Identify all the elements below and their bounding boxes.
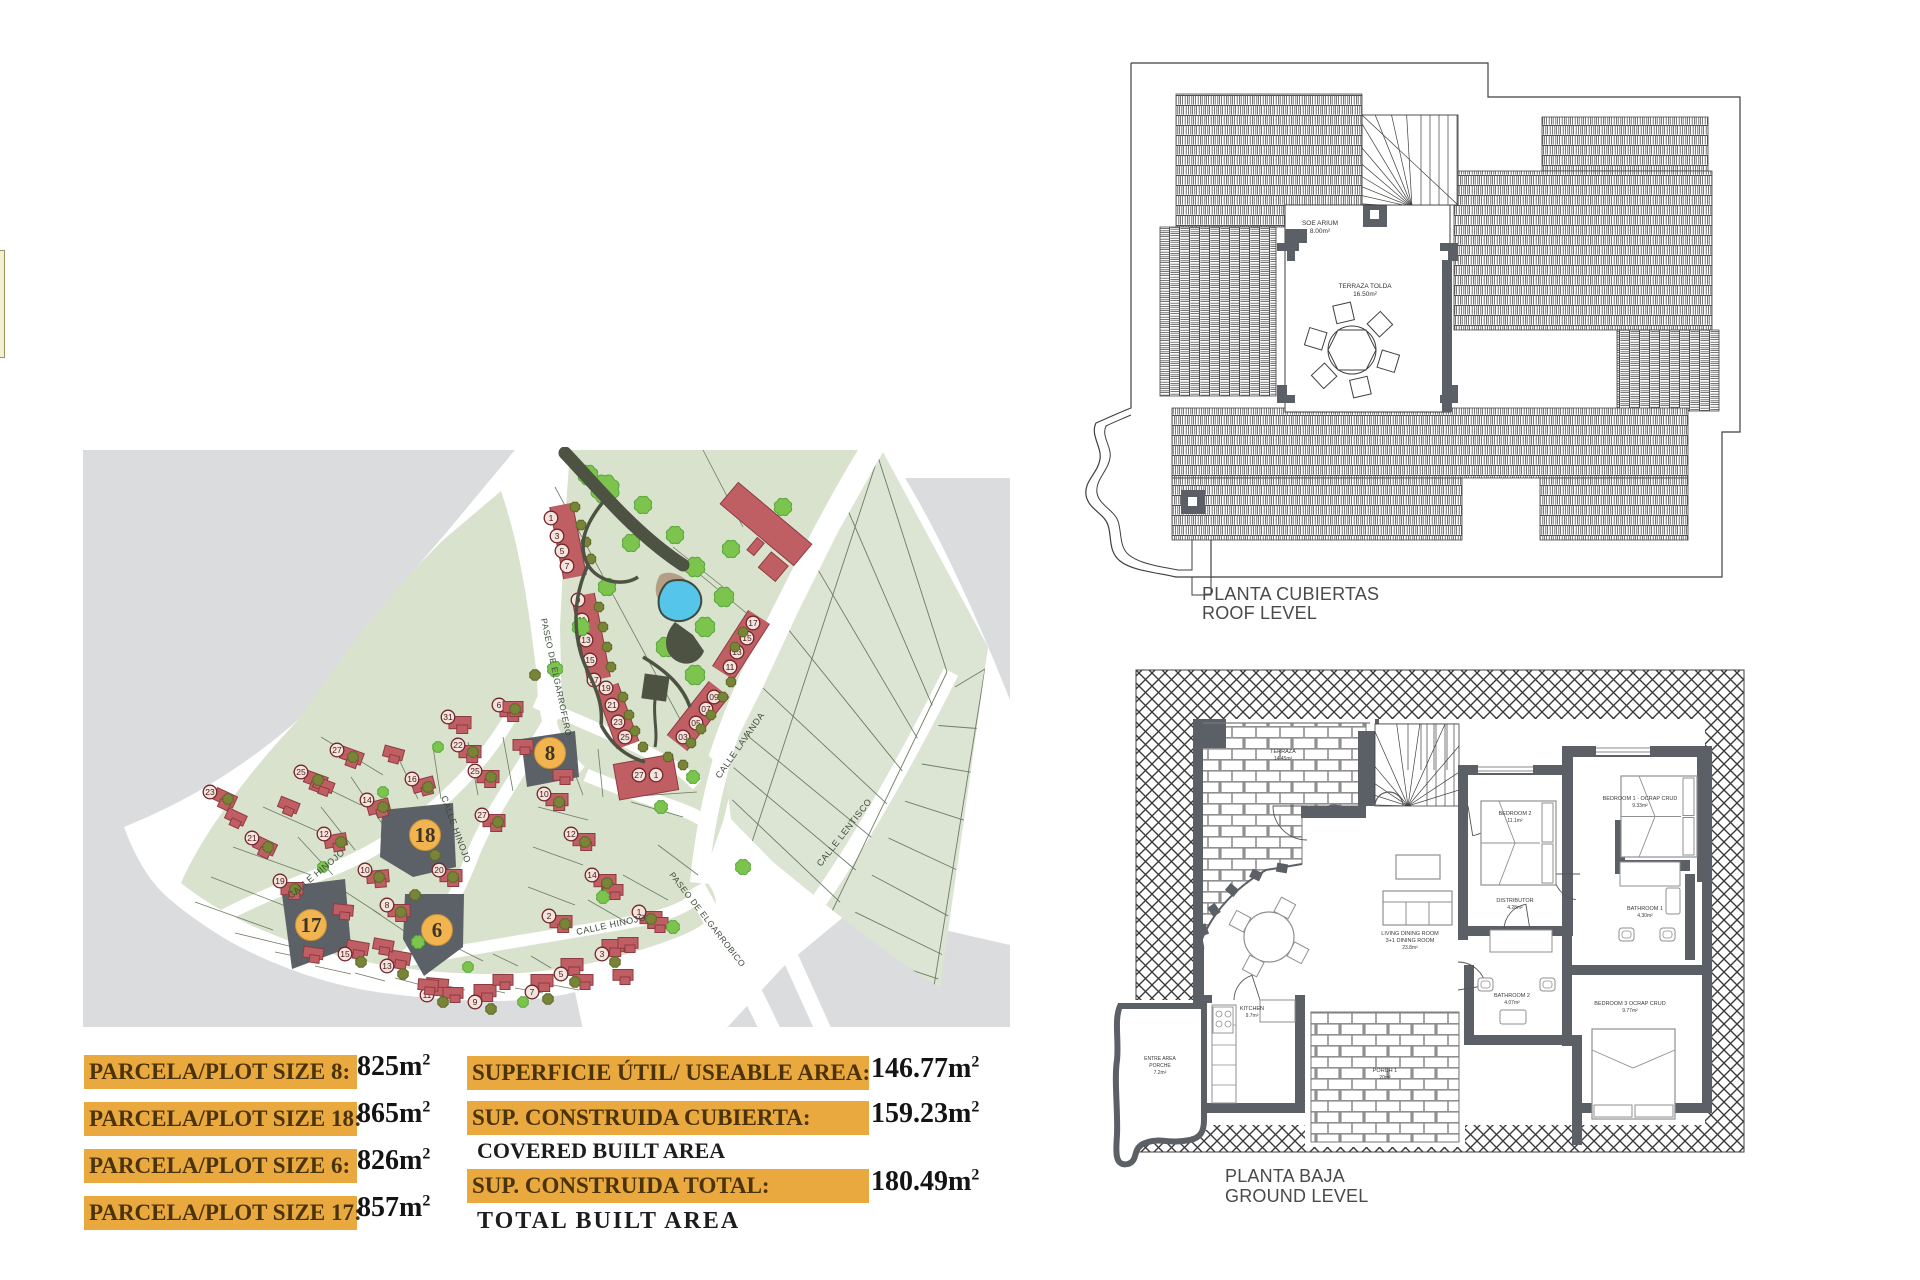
- svg-text:3: 3: [555, 531, 560, 541]
- svg-text:BEDROOM 2: BEDROOM 2: [1498, 811, 1531, 817]
- svg-text:8: 8: [385, 900, 390, 910]
- svg-text:4.28m²: 4.28m²: [1507, 905, 1523, 911]
- svg-text:5: 5: [560, 546, 565, 556]
- svg-text:23: 23: [205, 787, 215, 797]
- svg-text:17: 17: [748, 618, 758, 628]
- svg-text:19: 19: [601, 683, 611, 693]
- svg-text:14: 14: [587, 870, 597, 880]
- svg-text:16.50m²: 16.50m²: [1353, 291, 1378, 298]
- svg-text:09: 09: [709, 692, 719, 702]
- svg-text:18: 18: [415, 823, 436, 847]
- svg-text:11.1m²: 11.1m²: [1507, 818, 1523, 824]
- svg-text:9: 9: [473, 997, 478, 1007]
- svg-text:6: 6: [497, 700, 502, 710]
- svg-text:7: 7: [565, 561, 570, 571]
- svg-text:7.2m²: 7.2m²: [1154, 1070, 1167, 1076]
- svg-text:DISTRIBUTOR: DISTRIBUTOR: [1496, 898, 1533, 904]
- svg-text:2: 2: [547, 911, 552, 921]
- svg-text:BATHROOM 2: BATHROOM 2: [1494, 993, 1530, 999]
- svg-text:14: 14: [362, 795, 372, 805]
- svg-text:SOE ARIUM: SOE ARIUM: [1302, 220, 1338, 227]
- svg-text:9.77m²: 9.77m²: [1622, 1008, 1638, 1014]
- svg-text:16: 16: [407, 774, 417, 784]
- svg-text:21: 21: [247, 833, 257, 843]
- svg-text:27: 27: [634, 770, 644, 780]
- svg-text:17: 17: [301, 913, 322, 937]
- svg-text:8: 8: [545, 741, 556, 765]
- svg-text:BEDROOM 3 OCRAP CRUD: BEDROOM 3 OCRAP CRUD: [1594, 1001, 1665, 1007]
- svg-text:3: 3: [600, 949, 605, 959]
- svg-text:11: 11: [726, 662, 735, 672]
- svg-text:9.33m²: 9.33m²: [1632, 803, 1648, 809]
- svg-text:19: 19: [275, 876, 285, 886]
- svg-text:20: 20: [434, 865, 444, 875]
- svg-text:3+1 DINING ROOM: 3+1 DINING ROOM: [1386, 938, 1435, 944]
- svg-text:4.30m²: 4.30m²: [1637, 913, 1653, 919]
- svg-text:ENTRE AREA: ENTRE AREA: [1144, 1056, 1176, 1062]
- svg-text:14.45m²: 14.45m²: [1274, 756, 1293, 762]
- svg-text:15: 15: [585, 655, 595, 665]
- svg-text:27: 27: [332, 745, 342, 755]
- svg-text:BATHROOM 1: BATHROOM 1: [1627, 906, 1663, 912]
- svg-text:15: 15: [340, 949, 350, 959]
- svg-text:20m²: 20m²: [1379, 1075, 1391, 1081]
- svg-text:10: 10: [539, 789, 549, 799]
- svg-text:10: 10: [360, 865, 370, 875]
- svg-text:PORCH 1: PORCH 1: [1373, 1068, 1397, 1074]
- svg-text:4.07m²: 4.07m²: [1504, 1000, 1520, 1006]
- svg-text:27: 27: [477, 810, 487, 820]
- svg-text:13: 13: [581, 635, 591, 645]
- svg-text:21: 21: [607, 700, 617, 710]
- svg-text:25: 25: [296, 767, 306, 777]
- svg-text:8.00m²: 8.00m²: [1310, 228, 1331, 235]
- svg-text:23: 23: [613, 717, 623, 727]
- svg-text:5: 5: [559, 969, 564, 979]
- svg-text:13: 13: [382, 961, 392, 971]
- svg-text:25: 25: [620, 732, 630, 742]
- svg-text:25: 25: [470, 766, 480, 776]
- svg-text:23.8m²: 23.8m²: [1402, 945, 1418, 951]
- svg-text:TERRAZA TOLDA: TERRAZA TOLDA: [1338, 283, 1392, 290]
- svg-text:TERRAZA: TERRAZA: [1270, 749, 1296, 755]
- svg-text:BEDROOM 1 · OCRAP CRUD: BEDROOM 1 · OCRAP CRUD: [1603, 796, 1678, 802]
- svg-text:12: 12: [566, 829, 576, 839]
- svg-text:PORCHE: PORCHE: [1149, 1063, 1171, 1069]
- svg-text:22: 22: [453, 740, 463, 750]
- svg-text:6: 6: [432, 918, 443, 942]
- svg-text:1: 1: [549, 513, 554, 523]
- svg-text:KITCHEN: KITCHEN: [1240, 1006, 1264, 1012]
- svg-text:12: 12: [319, 829, 329, 839]
- svg-text:LIVING DINING ROOM: LIVING DINING ROOM: [1381, 931, 1439, 937]
- svg-text:9.7m²: 9.7m²: [1246, 1013, 1259, 1019]
- svg-text:7: 7: [530, 987, 535, 997]
- svg-text:31: 31: [443, 712, 453, 722]
- svg-text:1: 1: [654, 770, 659, 780]
